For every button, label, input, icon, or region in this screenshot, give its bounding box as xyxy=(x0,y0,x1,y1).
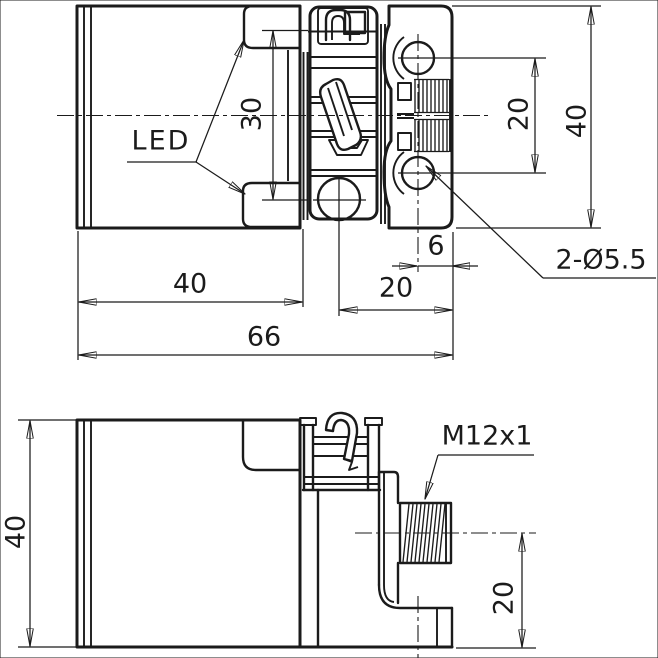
holes-diameter-label: 2-Ø5.5 xyxy=(555,245,646,276)
dim-overall-height-label: 40 xyxy=(562,104,593,138)
clamp-assembly-top-view xyxy=(304,7,386,224)
technical-drawing-page: LED 30 40 20 6 2-Ø5.5 20 40 66 xyxy=(0,0,658,658)
dim-overall-length-label: 66 xyxy=(247,322,281,353)
dim-side-height-label: 40 xyxy=(1,515,32,549)
dim-hole-to-edge-label: 6 xyxy=(427,231,444,262)
side-view: 40 M12x1 20 xyxy=(1,413,537,658)
dim-body-width-label: 40 xyxy=(173,269,207,300)
led-label: LED xyxy=(132,126,191,157)
dimensions-top-view xyxy=(78,6,656,360)
clamp-assembly-side-view xyxy=(300,413,382,490)
dimensions-side-view xyxy=(18,420,536,648)
clamp-lever-top-view xyxy=(320,79,361,150)
dim-hole-spacing-label: 20 xyxy=(504,97,535,131)
dim-clamp-to-edge-label: 20 xyxy=(379,273,413,304)
dim-connector-height-label: 20 xyxy=(489,581,520,615)
top-view: LED 30 40 20 6 2-Ø5.5 20 40 66 xyxy=(57,6,656,360)
connector-thread-label: M12x1 xyxy=(442,421,533,452)
led-window-side-view xyxy=(243,421,300,470)
sensor-dimension-drawing: LED 30 40 20 6 2-Ø5.5 20 40 66 xyxy=(0,0,658,658)
dim-led-spacing-label: 30 xyxy=(237,97,268,131)
